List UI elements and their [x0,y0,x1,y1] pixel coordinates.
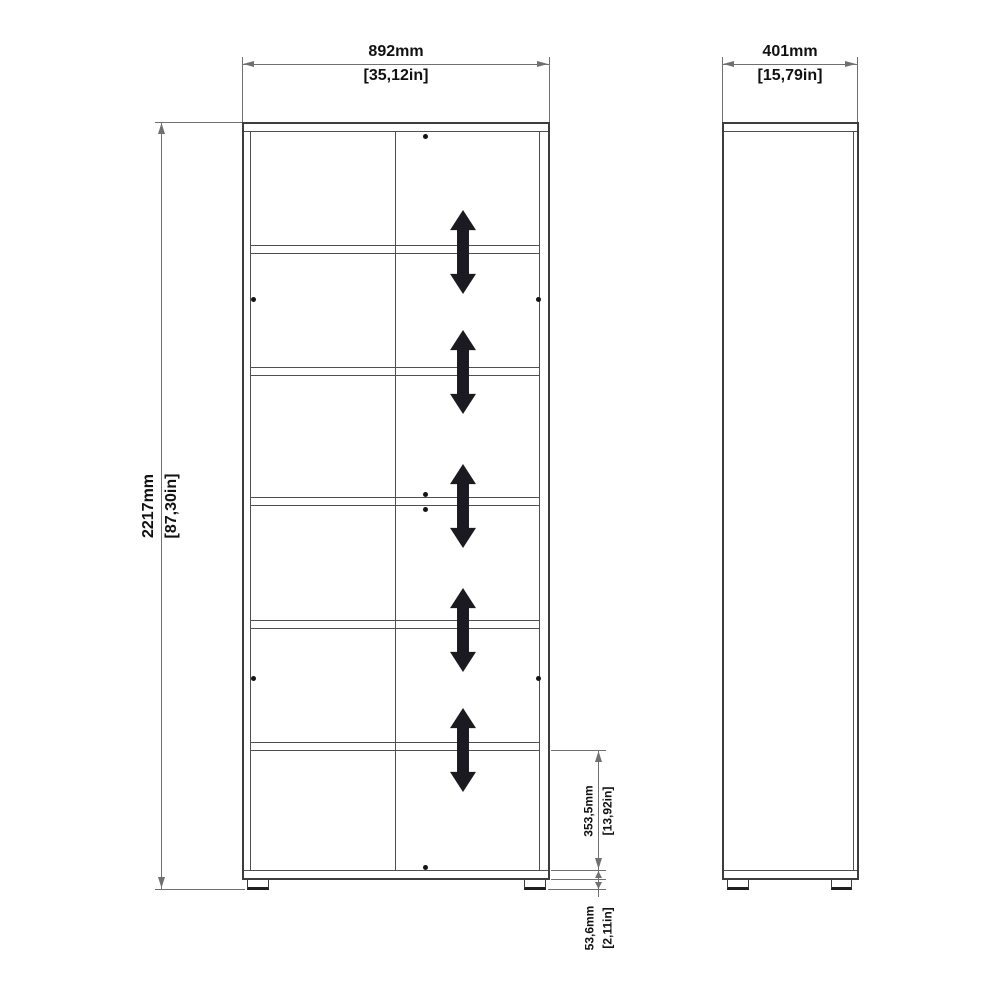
shelf-line [250,497,539,498]
dot-icon [251,297,256,302]
dot-icon [423,507,428,512]
front-bottom-panel-line [244,870,548,871]
shelf-line [250,505,539,506]
dimension-line [722,64,858,65]
dim-arrowhead-down-icon [595,858,602,869]
front-cabinet-outline [242,122,550,880]
dot-icon [423,134,428,139]
shelf-line [250,245,539,246]
technical-drawing-canvas: 892mm [35,12in] 401mm [15,79in] 2217mm [… [0,0,1000,1000]
shelf-spacing-mm-label: 353,5mm [582,783,595,838]
side-top-panel-line [724,131,857,132]
front-center-divider-line [395,131,396,870]
dimension-line [242,64,550,65]
dim-arrowhead-up-icon [595,751,602,762]
shelf-line [250,253,539,254]
height-mm-label: 2217mm [140,472,158,540]
dim-arrowhead-right-icon [845,61,856,67]
base-height-inches-label: [2,11in] [601,905,614,950]
dot-icon [536,297,541,302]
dot-icon [251,676,256,681]
front-top-panel-line [244,131,548,132]
width-inches-label: [35,12in] [362,67,431,85]
side-front-foot [727,879,749,890]
shelf-line [250,750,539,751]
dot-icon [536,676,541,681]
shelf-line [250,628,539,629]
dim-arrowhead-right-icon [537,61,548,67]
front-right-inner-wall-line [539,131,540,870]
depth-inches-label: [15,79in] [756,67,825,85]
extension-line [155,122,242,123]
side-back-panel-line [853,131,854,870]
dim-arrowhead-up-icon [158,123,165,134]
extension-line [549,57,550,122]
shelf-line [250,367,539,368]
dim-arrowhead-down-icon [158,877,165,888]
height-inches-label: [87,30in] [163,472,181,541]
shelf-spacing-inches-label: [13,92in] [601,785,614,838]
extension-line [155,889,245,890]
extension-line [857,57,858,122]
dot-icon [423,865,428,870]
dimension-line [161,122,162,889]
shelf-line [250,620,539,621]
dot-icon [423,492,428,497]
side-cabinet-outline [722,122,859,880]
shelf-line [250,375,539,376]
base-height-mm-label: 53,6mm [583,904,596,953]
width-mm-label: 892mm [366,43,425,61]
front-right-foot [524,879,546,890]
front-left-inner-wall-line [250,131,251,870]
dim-arrowhead-left-icon [243,61,254,67]
dim-arrowhead-down-icon [595,882,602,889]
dim-arrowhead-left-icon [723,61,734,67]
dim-arrowhead-up-icon [595,871,602,878]
shelf-line [250,742,539,743]
side-bottom-panel-line [724,870,857,871]
side-back-foot [831,879,852,890]
extension-line [722,57,723,122]
front-left-foot [247,879,269,890]
dimension-line [598,750,599,870]
extension-line [242,57,243,122]
depth-mm-label: 401mm [760,43,819,61]
